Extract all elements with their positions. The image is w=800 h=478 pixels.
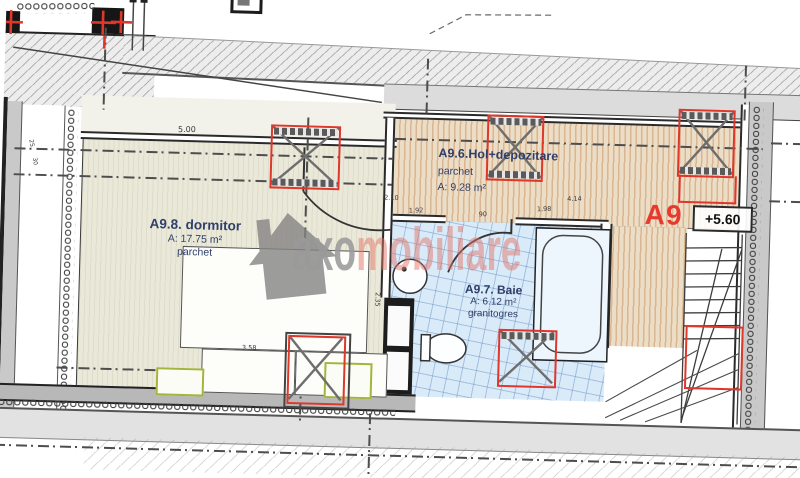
floor-plan-canvas: A9.8. dormitor A: 17.75 m² parchet A9.6.…	[0, 0, 800, 478]
column-c3	[677, 109, 736, 179]
column-c6-stairs	[684, 325, 744, 391]
column-black-top-left-2	[92, 7, 125, 34]
column-c1	[269, 124, 341, 190]
column-c2-hatch-top	[490, 117, 541, 125]
dim-door: 90	[479, 210, 487, 218]
column-c4-hatch-top	[501, 332, 554, 340]
dim-bedroom-right: 2.35	[373, 292, 381, 307]
column-c4	[497, 329, 558, 389]
dim-bedroom-bottom: 3.58	[242, 344, 257, 352]
dim-wall-left-2: 30	[31, 157, 39, 166]
column-c3-hatch-top	[681, 112, 732, 120]
column-c1-hatch-bottom	[272, 178, 336, 187]
axis-marker-box-inner	[237, 0, 249, 6]
hall-label: A9.6.Hol+depozitare parchet A: 9.28 m²	[437, 146, 558, 197]
hall-finish: parchet	[438, 165, 558, 181]
elevation-badge: +5.60	[692, 205, 753, 233]
dim-hall-1: 1.92	[409, 206, 424, 214]
column-c3-hatch-bottom	[680, 167, 731, 175]
bedroom-label: A9.8. dormitor A: 17.75 m² parchet	[109, 215, 280, 261]
column-c1-hatch-top	[274, 127, 338, 136]
dim-wall-left-1: 25	[27, 139, 35, 148]
dim-hall-left: 2.10	[384, 194, 399, 202]
dresser-left	[201, 349, 296, 396]
axis-line-right-margin-1	[771, 142, 800, 145]
room-hall-floor-right	[602, 226, 687, 348]
column-c5	[286, 335, 346, 406]
window-box-left	[156, 367, 205, 396]
hall-name: A9.6.Hol+depozitare	[438, 146, 558, 164]
dim-hall-3: 4.14	[567, 195, 582, 203]
floor-plan-drawing: A9.8. dormitor A: 17.75 m² parchet A9.6.…	[0, 0, 800, 478]
plumbing-wall-slot-2	[386, 352, 409, 391]
bathroom-label: A9.7. Baie A: 6.12 m² granitogres	[423, 281, 564, 323]
hall-bath-wall-left	[393, 214, 446, 223]
plumbing-wall-slot-1	[387, 306, 410, 347]
dashed-guide-line	[430, 12, 555, 37]
dim-bedroom-top: 5.00	[178, 125, 196, 134]
axis-line-right-margin-2	[769, 200, 800, 203]
apartment-code: A9	[644, 199, 683, 232]
left-wall-cavity	[13, 104, 66, 417]
column-c3-extension	[678, 175, 737, 205]
top-left-insulation	[16, 1, 94, 14]
column-black-top-left-1	[6, 11, 21, 33]
dim-hall-2: 1.98	[537, 205, 552, 213]
elevation-value: +5.60	[705, 211, 741, 228]
